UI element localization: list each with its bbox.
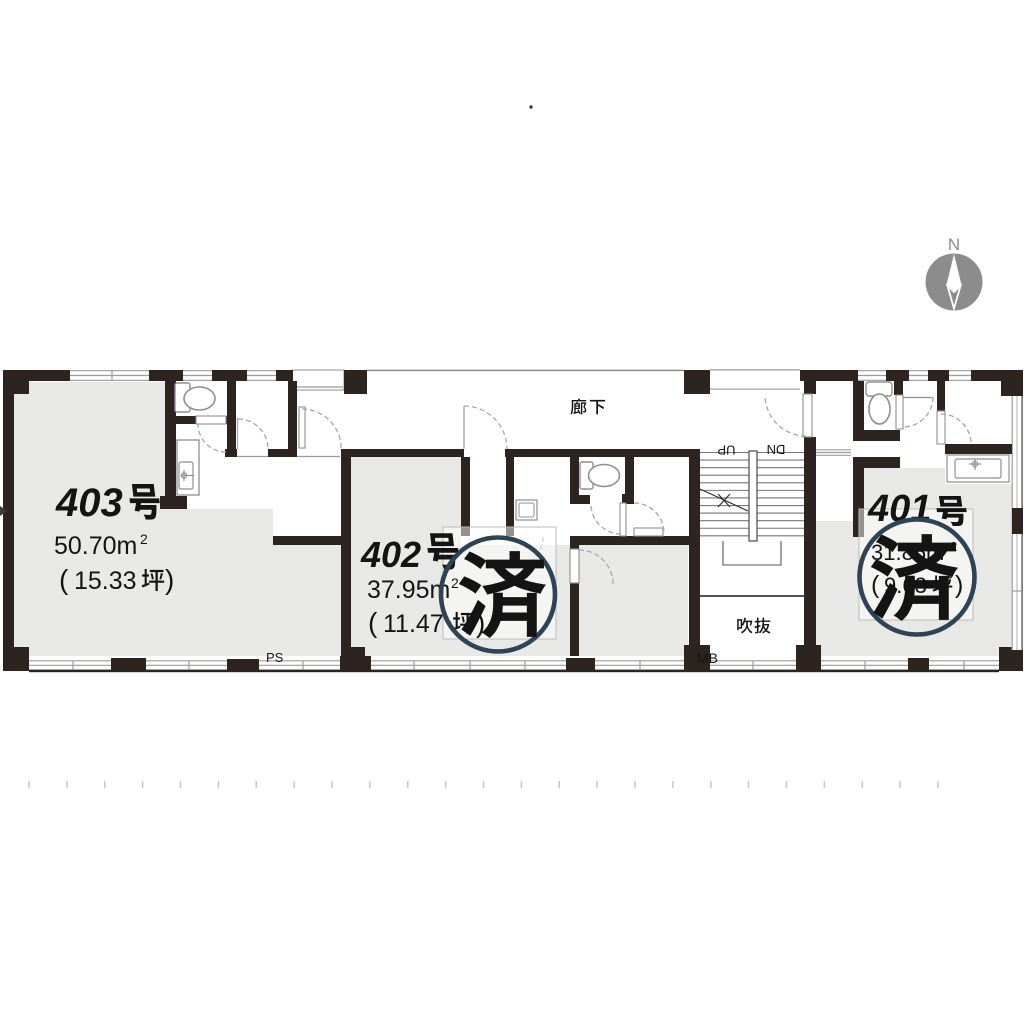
svg-text:11.47: 11.47 xyxy=(383,610,444,638)
svg-text:15.33: 15.33 xyxy=(74,567,137,595)
svg-text:PS: PS xyxy=(266,650,284,665)
svg-text:DN: DN xyxy=(767,442,786,457)
svg-text:MB: MB xyxy=(697,650,718,666)
svg-text:): ) xyxy=(165,564,174,595)
svg-text:UP: UP xyxy=(717,443,735,458)
svg-text:2: 2 xyxy=(451,575,459,591)
svg-text:50.70m: 50.70m xyxy=(54,532,137,560)
svg-text:37.95m: 37.95m xyxy=(367,576,450,604)
svg-text:): ) xyxy=(955,571,963,599)
svg-text:(: ( xyxy=(871,571,880,599)
svg-text:(: ( xyxy=(368,607,378,638)
svg-text:(: ( xyxy=(59,564,69,595)
svg-text:403: 403 xyxy=(55,481,123,525)
svg-text:402: 402 xyxy=(360,534,421,575)
svg-text:N: N xyxy=(948,235,960,254)
svg-text:2: 2 xyxy=(140,531,148,547)
